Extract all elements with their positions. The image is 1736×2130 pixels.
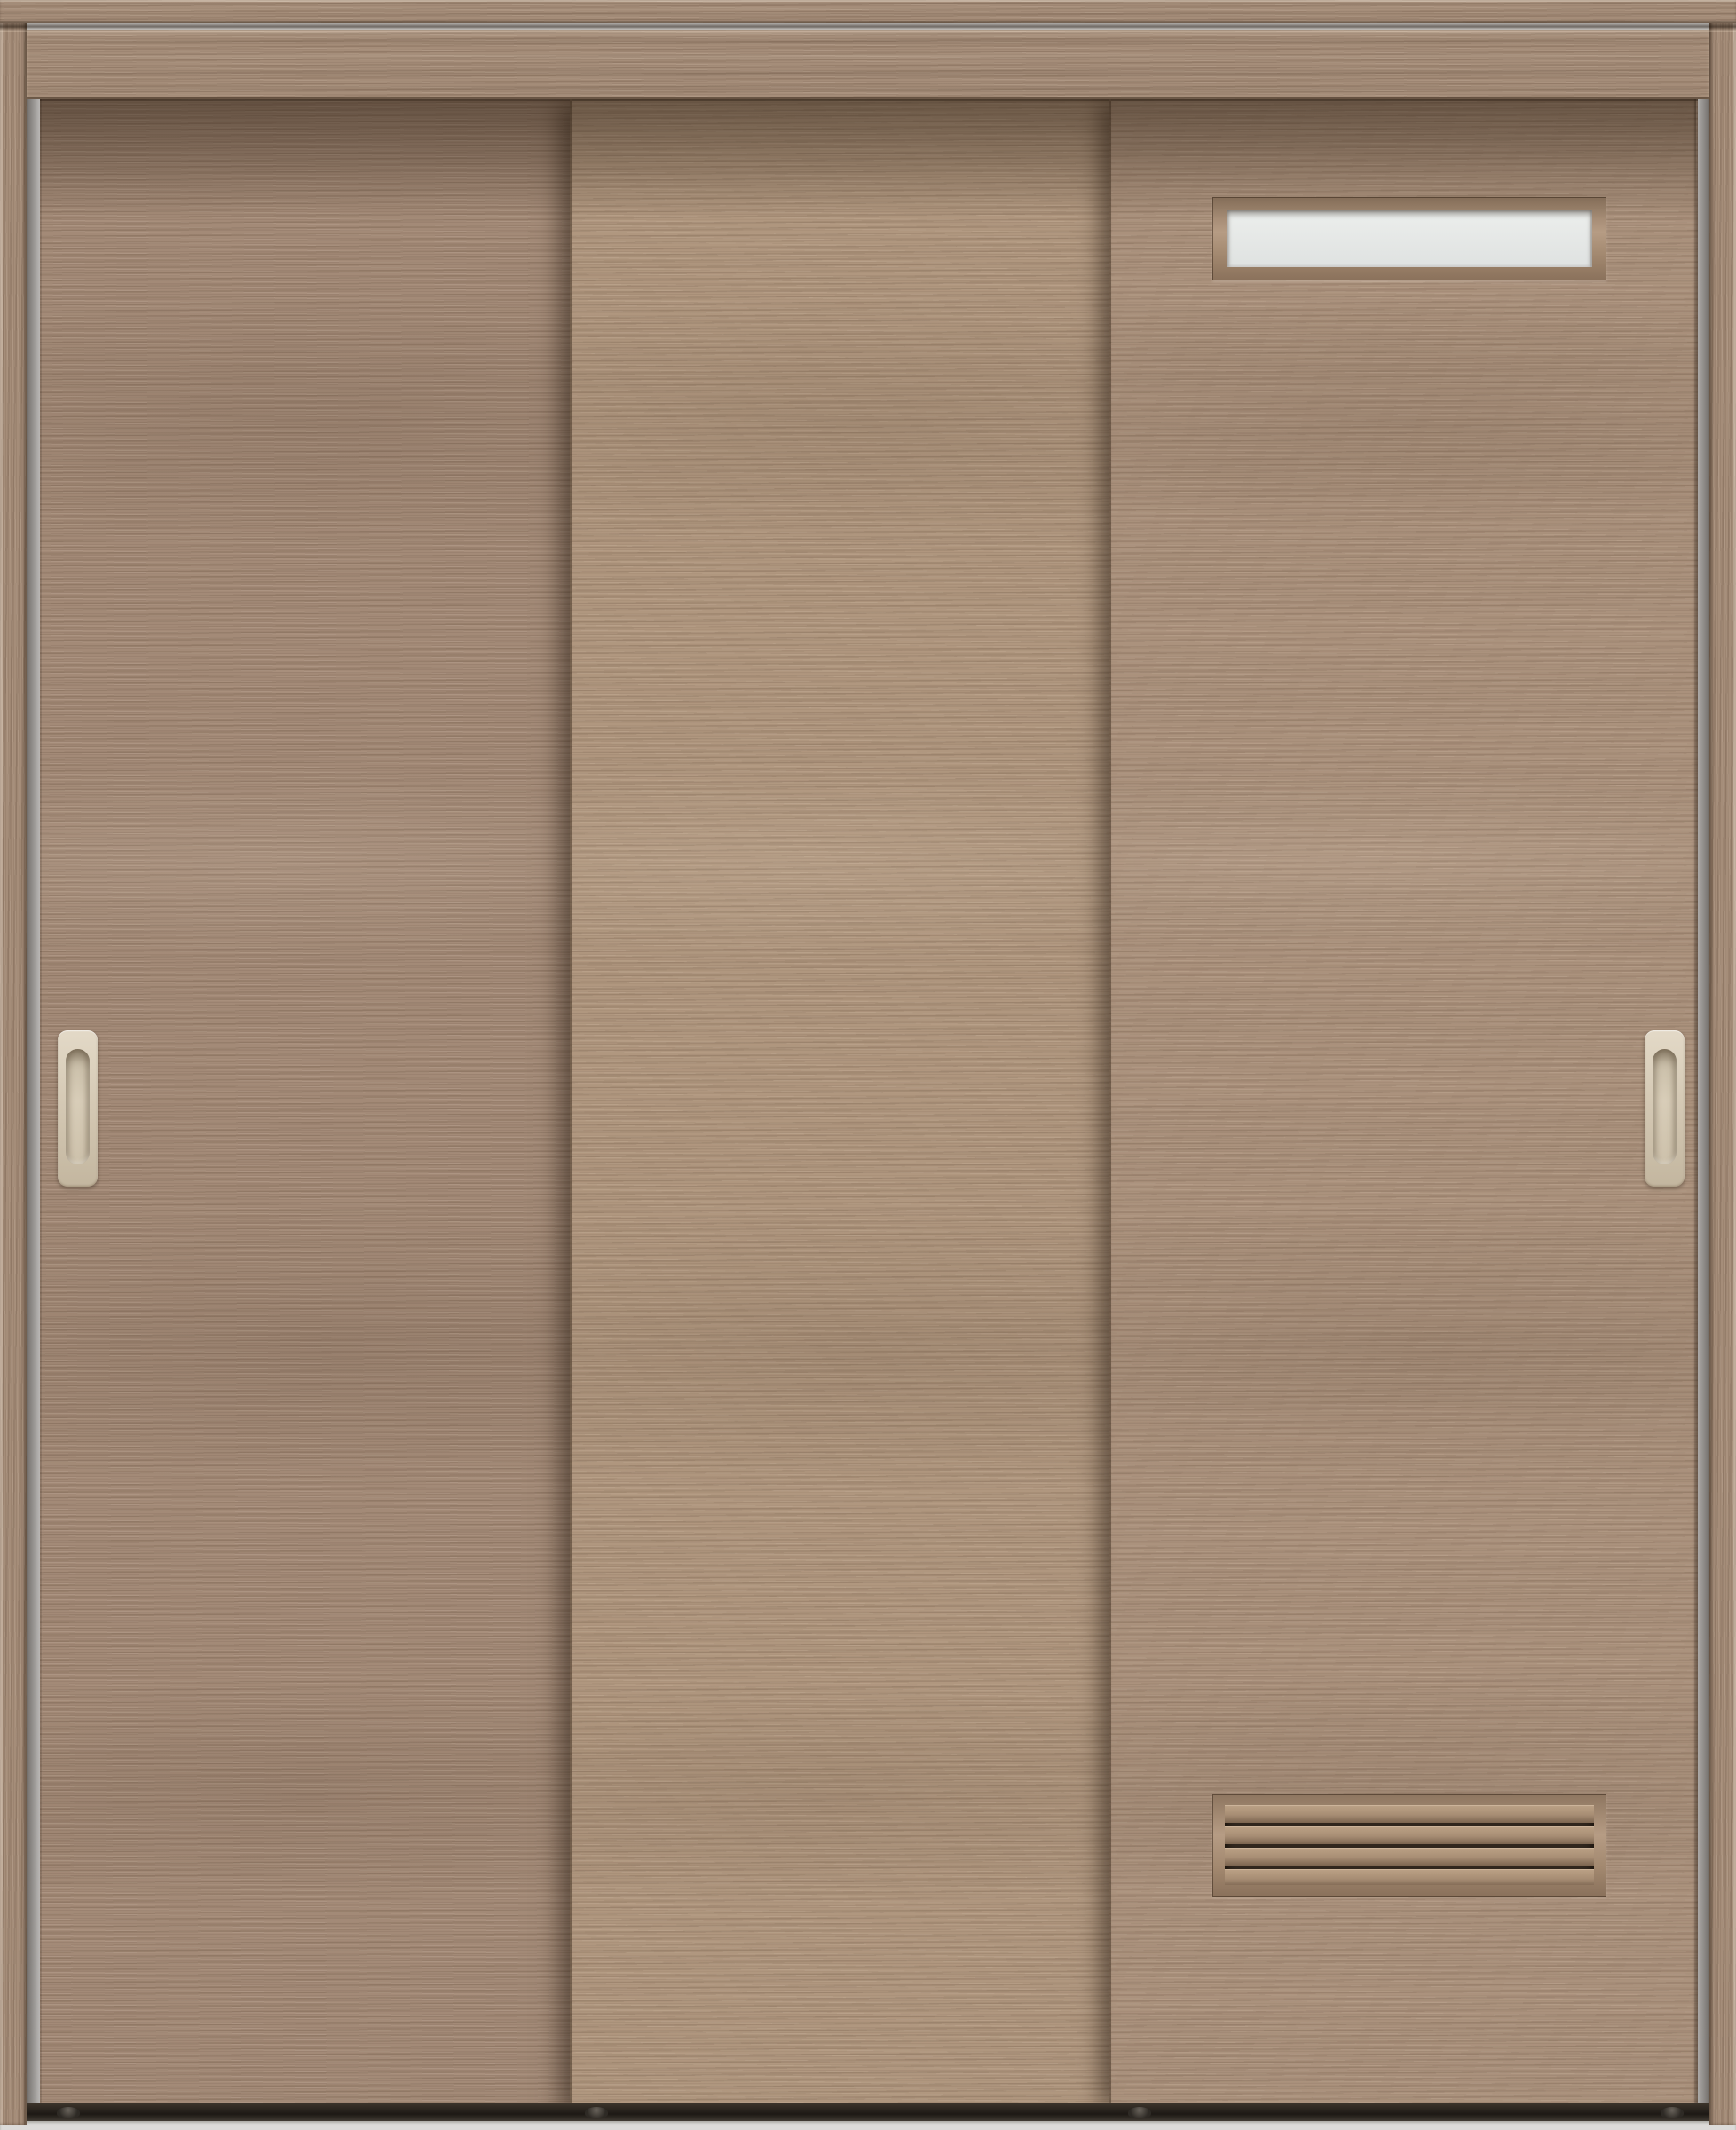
door-panel-right: [1109, 99, 1698, 2109]
louver-vent-slats: [1225, 1805, 1594, 1885]
left-gap-shadow: [26, 30, 42, 2107]
floor-guide: [1661, 2107, 1684, 2118]
frame-casing-groove: [0, 21, 1736, 32]
floor-guide: [585, 2107, 608, 2118]
frame-jamb-right: [1709, 21, 1736, 2125]
door-panel-middle: [570, 99, 1118, 2116]
frame-jamb-left: [0, 21, 27, 2125]
louver-slat: [1225, 1826, 1594, 1844]
louver-vent-frame: [1212, 1794, 1606, 1897]
under-header-shadow: [40, 99, 1696, 219]
floor-guide: [1128, 2107, 1151, 2118]
louver-slat: [1225, 1848, 1594, 1866]
door-panel-left: [40, 99, 579, 2110]
frame-header-board: [27, 30, 1709, 99]
louver-slat: [1225, 1805, 1594, 1823]
sliding-door-unit: [0, 0, 1736, 2130]
right-gap-shadow: [1694, 30, 1710, 2107]
floor-guide: [57, 2107, 80, 2118]
pull-handle-right: [1645, 1030, 1685, 1187]
pull-handle-left-recess: [66, 1049, 90, 1164]
frame-top-casing: [0, 0, 1736, 23]
floor-track: [27, 2103, 1709, 2123]
pull-handle-left: [58, 1030, 98, 1187]
pull-handle-right-recess: [1653, 1049, 1677, 1164]
louver-slat: [1225, 1869, 1594, 1885]
floor: [0, 2121, 1736, 2130]
